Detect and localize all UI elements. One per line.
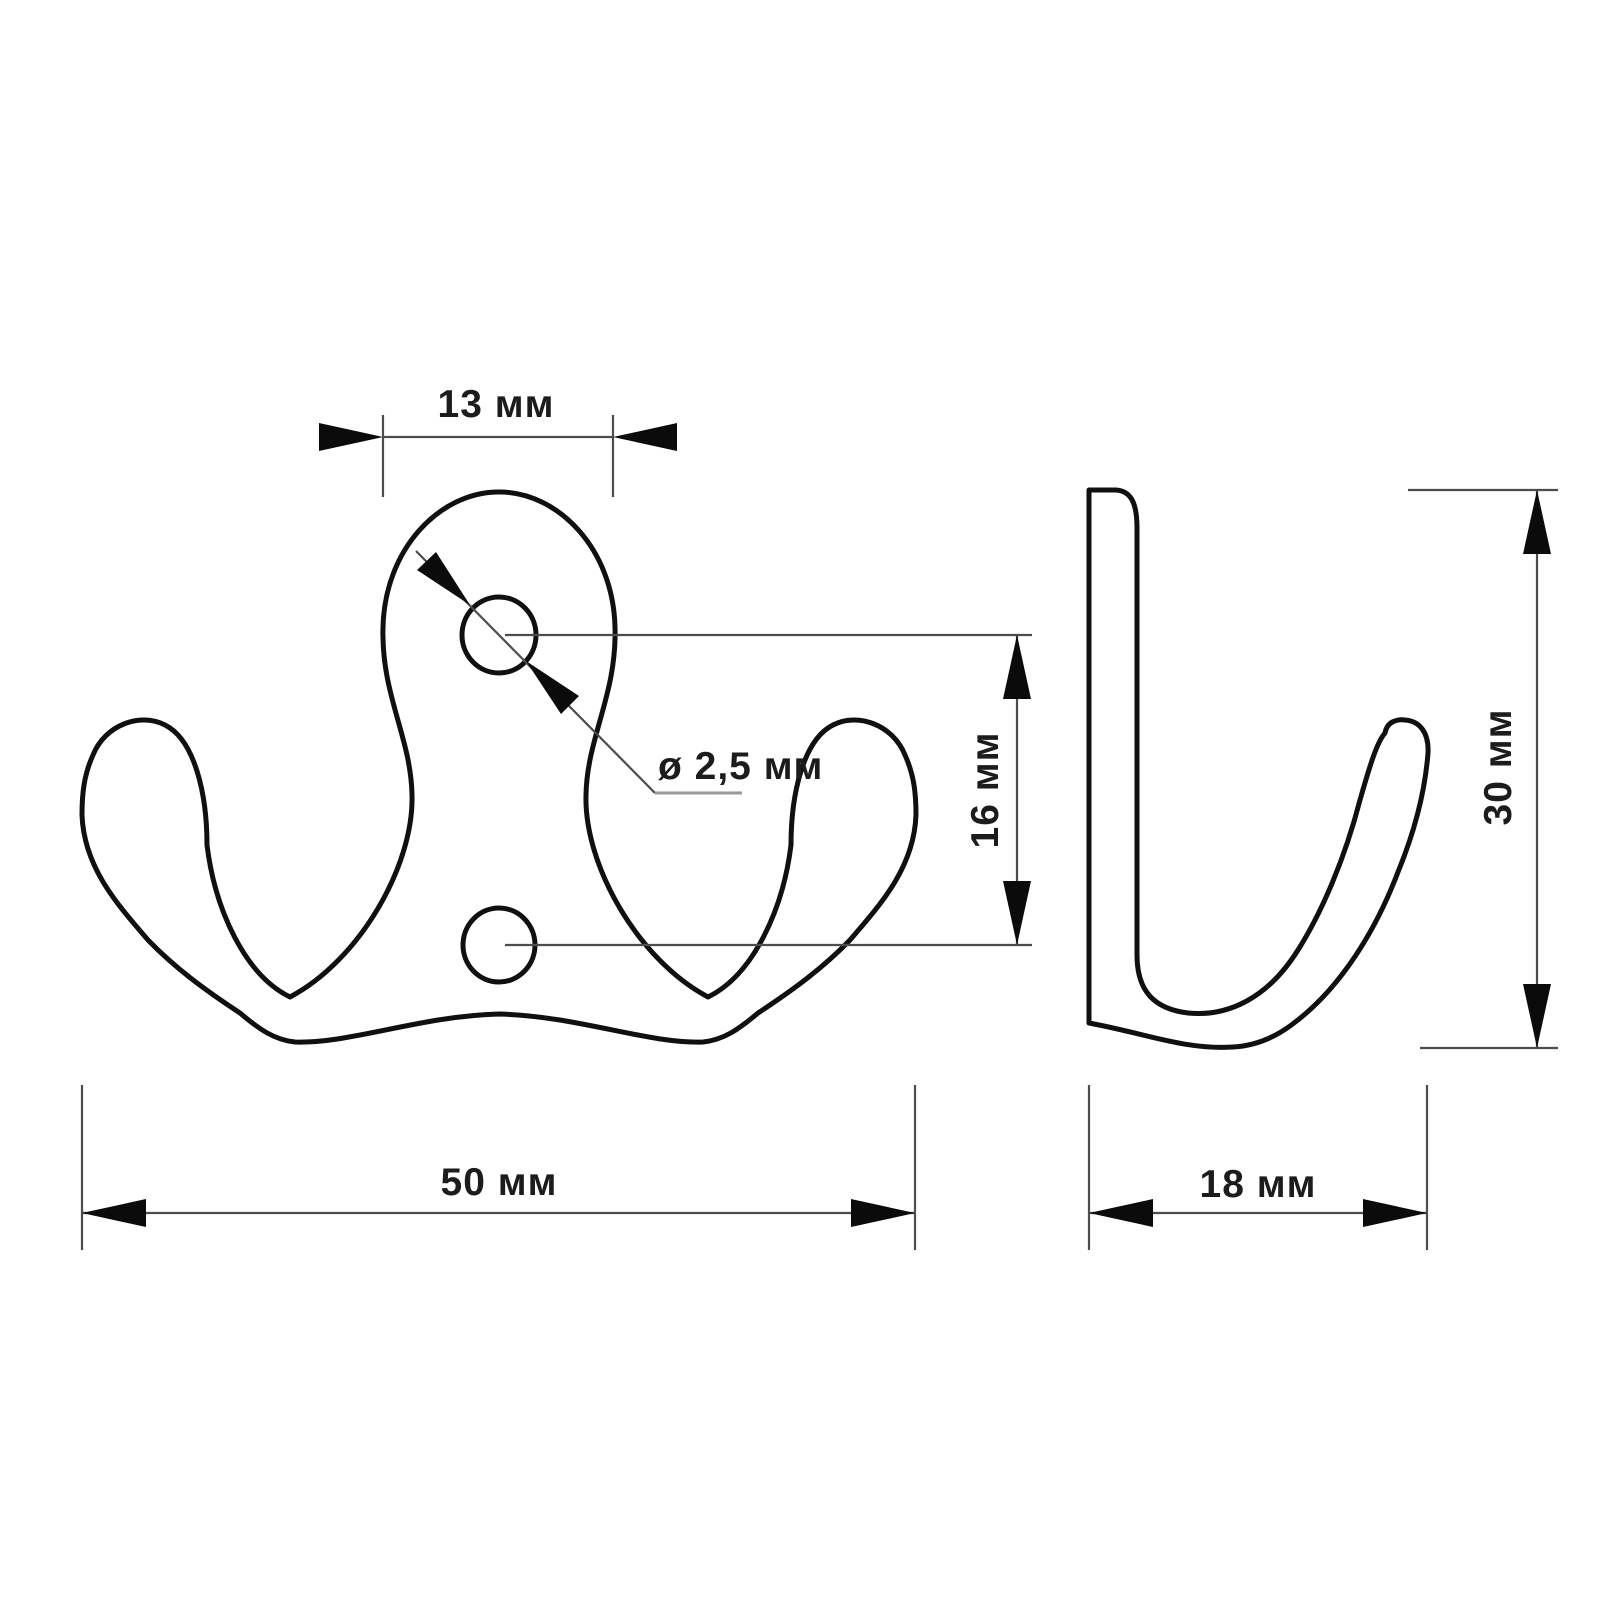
- arrowhead-down-icon: [1003, 881, 1031, 945]
- technical-drawing-svg: 13 мм ø 2,5 мм 16 мм 50 мм 30 мм: [0, 0, 1600, 1600]
- dim-label-height: 30 мм: [1477, 709, 1520, 826]
- dim-label-hole-diameter: ø 2,5 мм: [658, 745, 823, 788]
- dimension-height: 30 мм: [1408, 490, 1558, 1048]
- arrowhead-up-icon: [1003, 635, 1031, 699]
- arrowhead-left-icon: [82, 1199, 146, 1227]
- dim-label-depth: 18 мм: [1200, 1163, 1317, 1206]
- arrowhead-right-icon: [1363, 1199, 1427, 1227]
- arrowhead-left-icon: [613, 423, 677, 451]
- arrowhead-left-icon: [1089, 1199, 1153, 1227]
- arrowhead-down-icon: [1523, 984, 1551, 1048]
- side-view: [1089, 490, 1428, 1047]
- arrowhead-right-icon: [851, 1199, 915, 1227]
- dimension-total-width: 50 мм: [82, 1085, 915, 1250]
- dimension-top-width: 13 мм: [319, 383, 677, 497]
- arrowhead-up-icon: [1523, 490, 1551, 554]
- arrowhead-right-icon: [319, 423, 383, 451]
- dim-label-top-width: 13 мм: [438, 383, 555, 426]
- dim-label-hole-spacing: 16 мм: [964, 732, 1007, 849]
- side-view-outline: [1089, 490, 1428, 1047]
- drawing-canvas: 13 мм ø 2,5 мм 16 мм 50 мм 30 мм: [0, 0, 1600, 1600]
- dim-label-total-width: 50 мм: [441, 1161, 558, 1204]
- dimension-depth: 18 мм: [1089, 1085, 1427, 1250]
